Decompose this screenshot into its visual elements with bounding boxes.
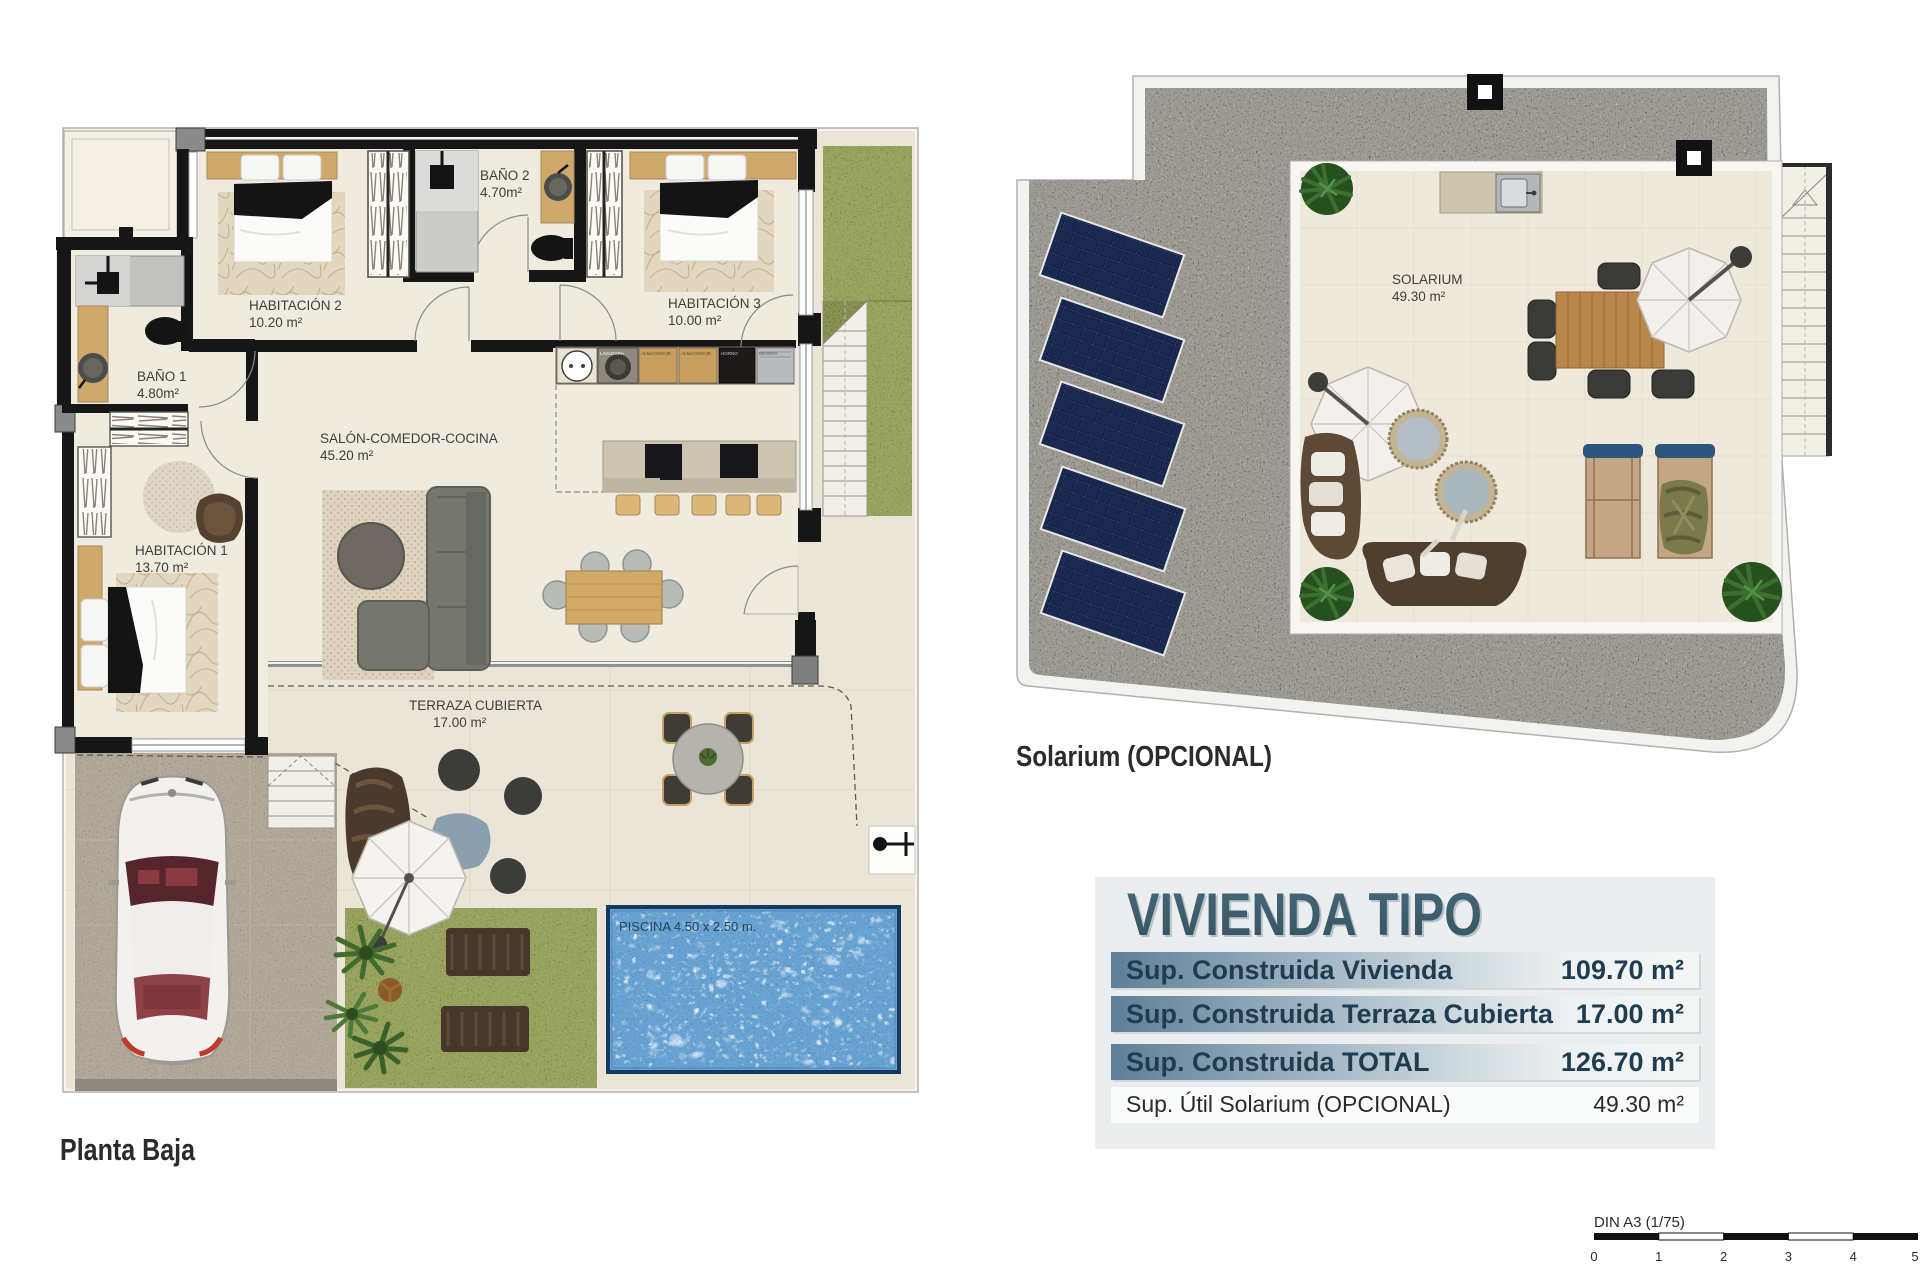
svg-text:5: 5 <box>1911 1249 1918 1264</box>
svg-text:HABITACIÓN 2: HABITACIÓN 2 <box>249 298 342 313</box>
svg-text:HABITACIÓN 3: HABITACIÓN 3 <box>668 296 761 311</box>
svg-text:BAÑO 1: BAÑO 1 <box>137 369 187 384</box>
svg-text:0: 0 <box>1590 1249 1597 1264</box>
svg-text:HORNO: HORNO <box>721 351 738 356</box>
svg-text:4.70m²: 4.70m² <box>480 185 523 200</box>
svg-text:3: 3 <box>1785 1249 1792 1264</box>
svg-text:13.70 m²: 13.70 m² <box>135 560 189 575</box>
svg-text:1: 1 <box>1655 1249 1662 1264</box>
svg-text:PISCINA 4.50 x 2.50 m.: PISCINA 4.50 x 2.50 m. <box>619 919 756 934</box>
svg-text:Planta Baja: Planta Baja <box>60 1132 196 1167</box>
svg-text:HABITACIÓN 1: HABITACIÓN 1 <box>135 543 228 558</box>
svg-text:TERRAZA CUBIERTA: TERRAZA CUBIERTA <box>409 698 542 713</box>
svg-text:4.80m²: 4.80m² <box>137 386 180 401</box>
svg-text:DIN A3 (1/75): DIN A3 (1/75) <box>1594 1214 1685 1231</box>
svg-text:49.30 m²: 49.30 m² <box>1593 1091 1684 1117</box>
svg-text:109.70 m²: 109.70 m² <box>1561 955 1684 985</box>
svg-text:10.20 m²: 10.20 m² <box>249 315 303 330</box>
svg-text:Sup. Construida Terraza Cubier: Sup. Construida Terraza Cubierta <box>1126 999 1554 1029</box>
svg-text:4: 4 <box>1850 1249 1857 1264</box>
svg-text:SALÓN-COMEDOR-COCINA: SALÓN-COMEDOR-COCINA <box>320 431 498 446</box>
svg-text:126.70 m²: 126.70 m² <box>1561 1047 1684 1077</box>
svg-text:Sup. Construida Vivienda: Sup. Construida Vivienda <box>1126 955 1454 985</box>
svg-text:Sup. Construida TOTAL: Sup. Construida TOTAL <box>1126 1047 1430 1077</box>
svg-text:45.20 m²: 45.20 m² <box>320 448 374 463</box>
svg-text:Solarium (OPCIONAL): Solarium (OPCIONAL) <box>1016 741 1272 773</box>
svg-text:Sup. Útil Solarium (OPCIONAL): Sup. Útil Solarium (OPCIONAL) <box>1126 1091 1451 1117</box>
svg-text:ALMACENAJE: ALMACENAJE <box>681 351 711 356</box>
svg-text:VIVIENDA TIPO: VIVIENDA TIPO <box>1127 881 1482 948</box>
svg-text:NEVERA: NEVERA <box>759 351 778 356</box>
svg-text:BAÑO 2: BAÑO 2 <box>480 168 530 183</box>
svg-text:17.00 m²: 17.00 m² <box>433 715 487 730</box>
svg-text:ALMACENAJE: ALMACENAJE <box>641 351 671 356</box>
svg-text:17.00 m²: 17.00 m² <box>1576 999 1684 1029</box>
svg-text:10.00 m²: 10.00 m² <box>668 313 722 328</box>
svg-text:49.30 m²: 49.30 m² <box>1392 289 1446 304</box>
svg-text:SOLARIUM: SOLARIUM <box>1392 272 1463 287</box>
svg-text:2: 2 <box>1720 1249 1727 1264</box>
svg-text:LAVADORA: LAVADORA <box>600 351 624 356</box>
